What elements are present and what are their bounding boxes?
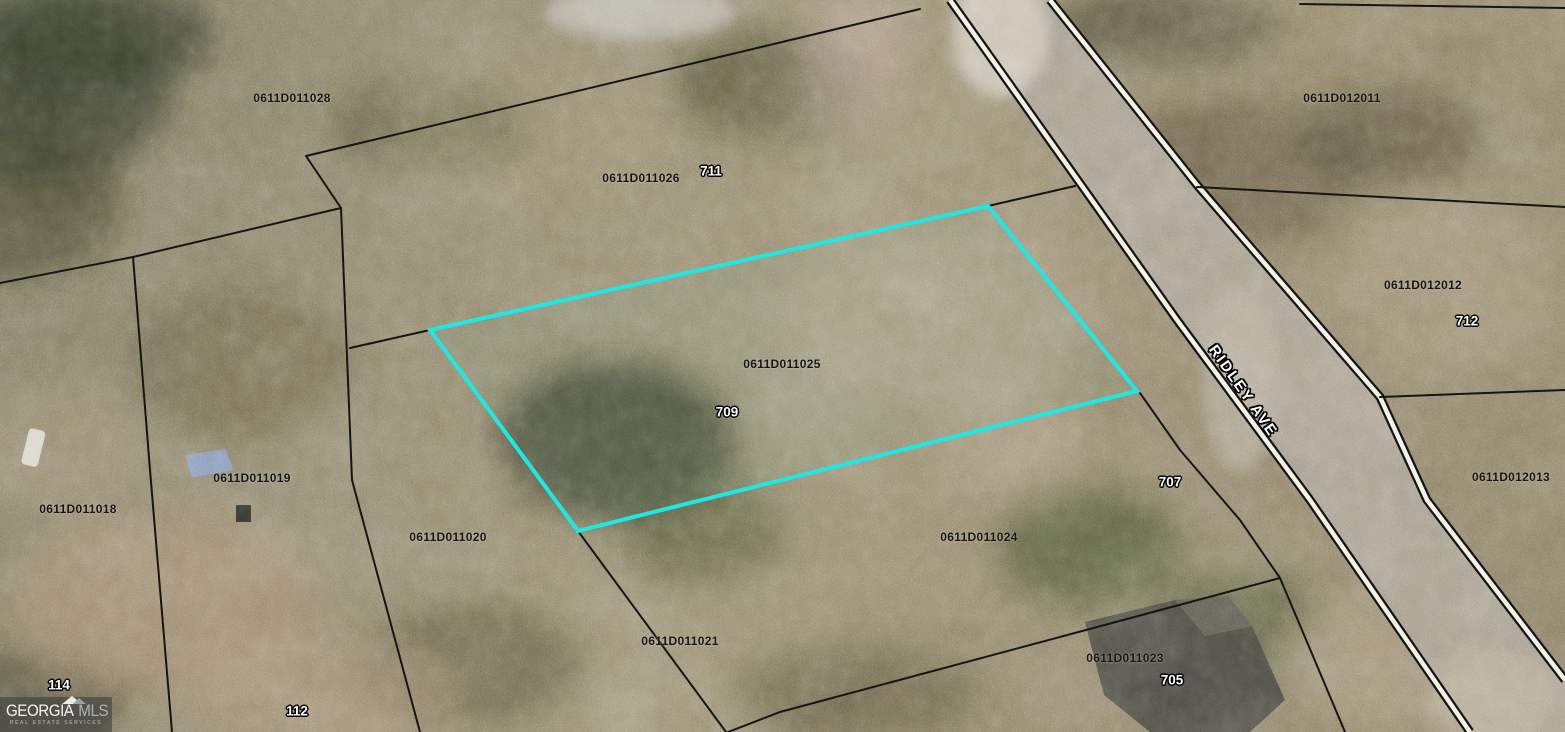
house-number-label: 112 (286, 704, 308, 719)
parcel-label: 0611D011018 (39, 502, 116, 516)
parcel-label-selected: 0611D011025 (743, 357, 820, 371)
watermark-brand-secondary: MLS (78, 703, 108, 720)
parcel-label: 0611D012013 (1472, 470, 1550, 484)
parcel-label: 0611D011026 (602, 171, 679, 185)
house-number-label: 114 (48, 678, 70, 693)
watermark-brand-primary: GEORGIA (6, 703, 74, 720)
parcel-label: 0611D011020 (409, 530, 486, 544)
parcel-label: 0611D011021 (641, 634, 718, 648)
parcel-label: 0611D011028 (253, 91, 330, 105)
watermark-logo: GEORGIA MLS REAL ESTATE SERVICES (0, 697, 112, 732)
watermark-tagline: REAL ESTATE SERVICES (10, 721, 102, 726)
house-number-label: 712 (1456, 314, 1479, 329)
aerial-map-canvas[interactable]: 0611D011028 0611D011026 0611D011025 0611… (0, 0, 1565, 732)
house-number-label: 707 (1159, 475, 1182, 490)
parcel-label: 0611D012011 (1303, 91, 1380, 105)
parcel-label: 0611D012012 (1384, 278, 1462, 292)
house-number-label: 711 (700, 164, 722, 179)
parcel-label: 0611D011019 (213, 471, 290, 485)
house-number-label: 705 (1161, 673, 1184, 688)
parcel-label: 0611D011024 (940, 530, 1017, 544)
house-number-label: 709 (716, 405, 739, 420)
parcel-label: 0611D011023 (1086, 651, 1163, 665)
